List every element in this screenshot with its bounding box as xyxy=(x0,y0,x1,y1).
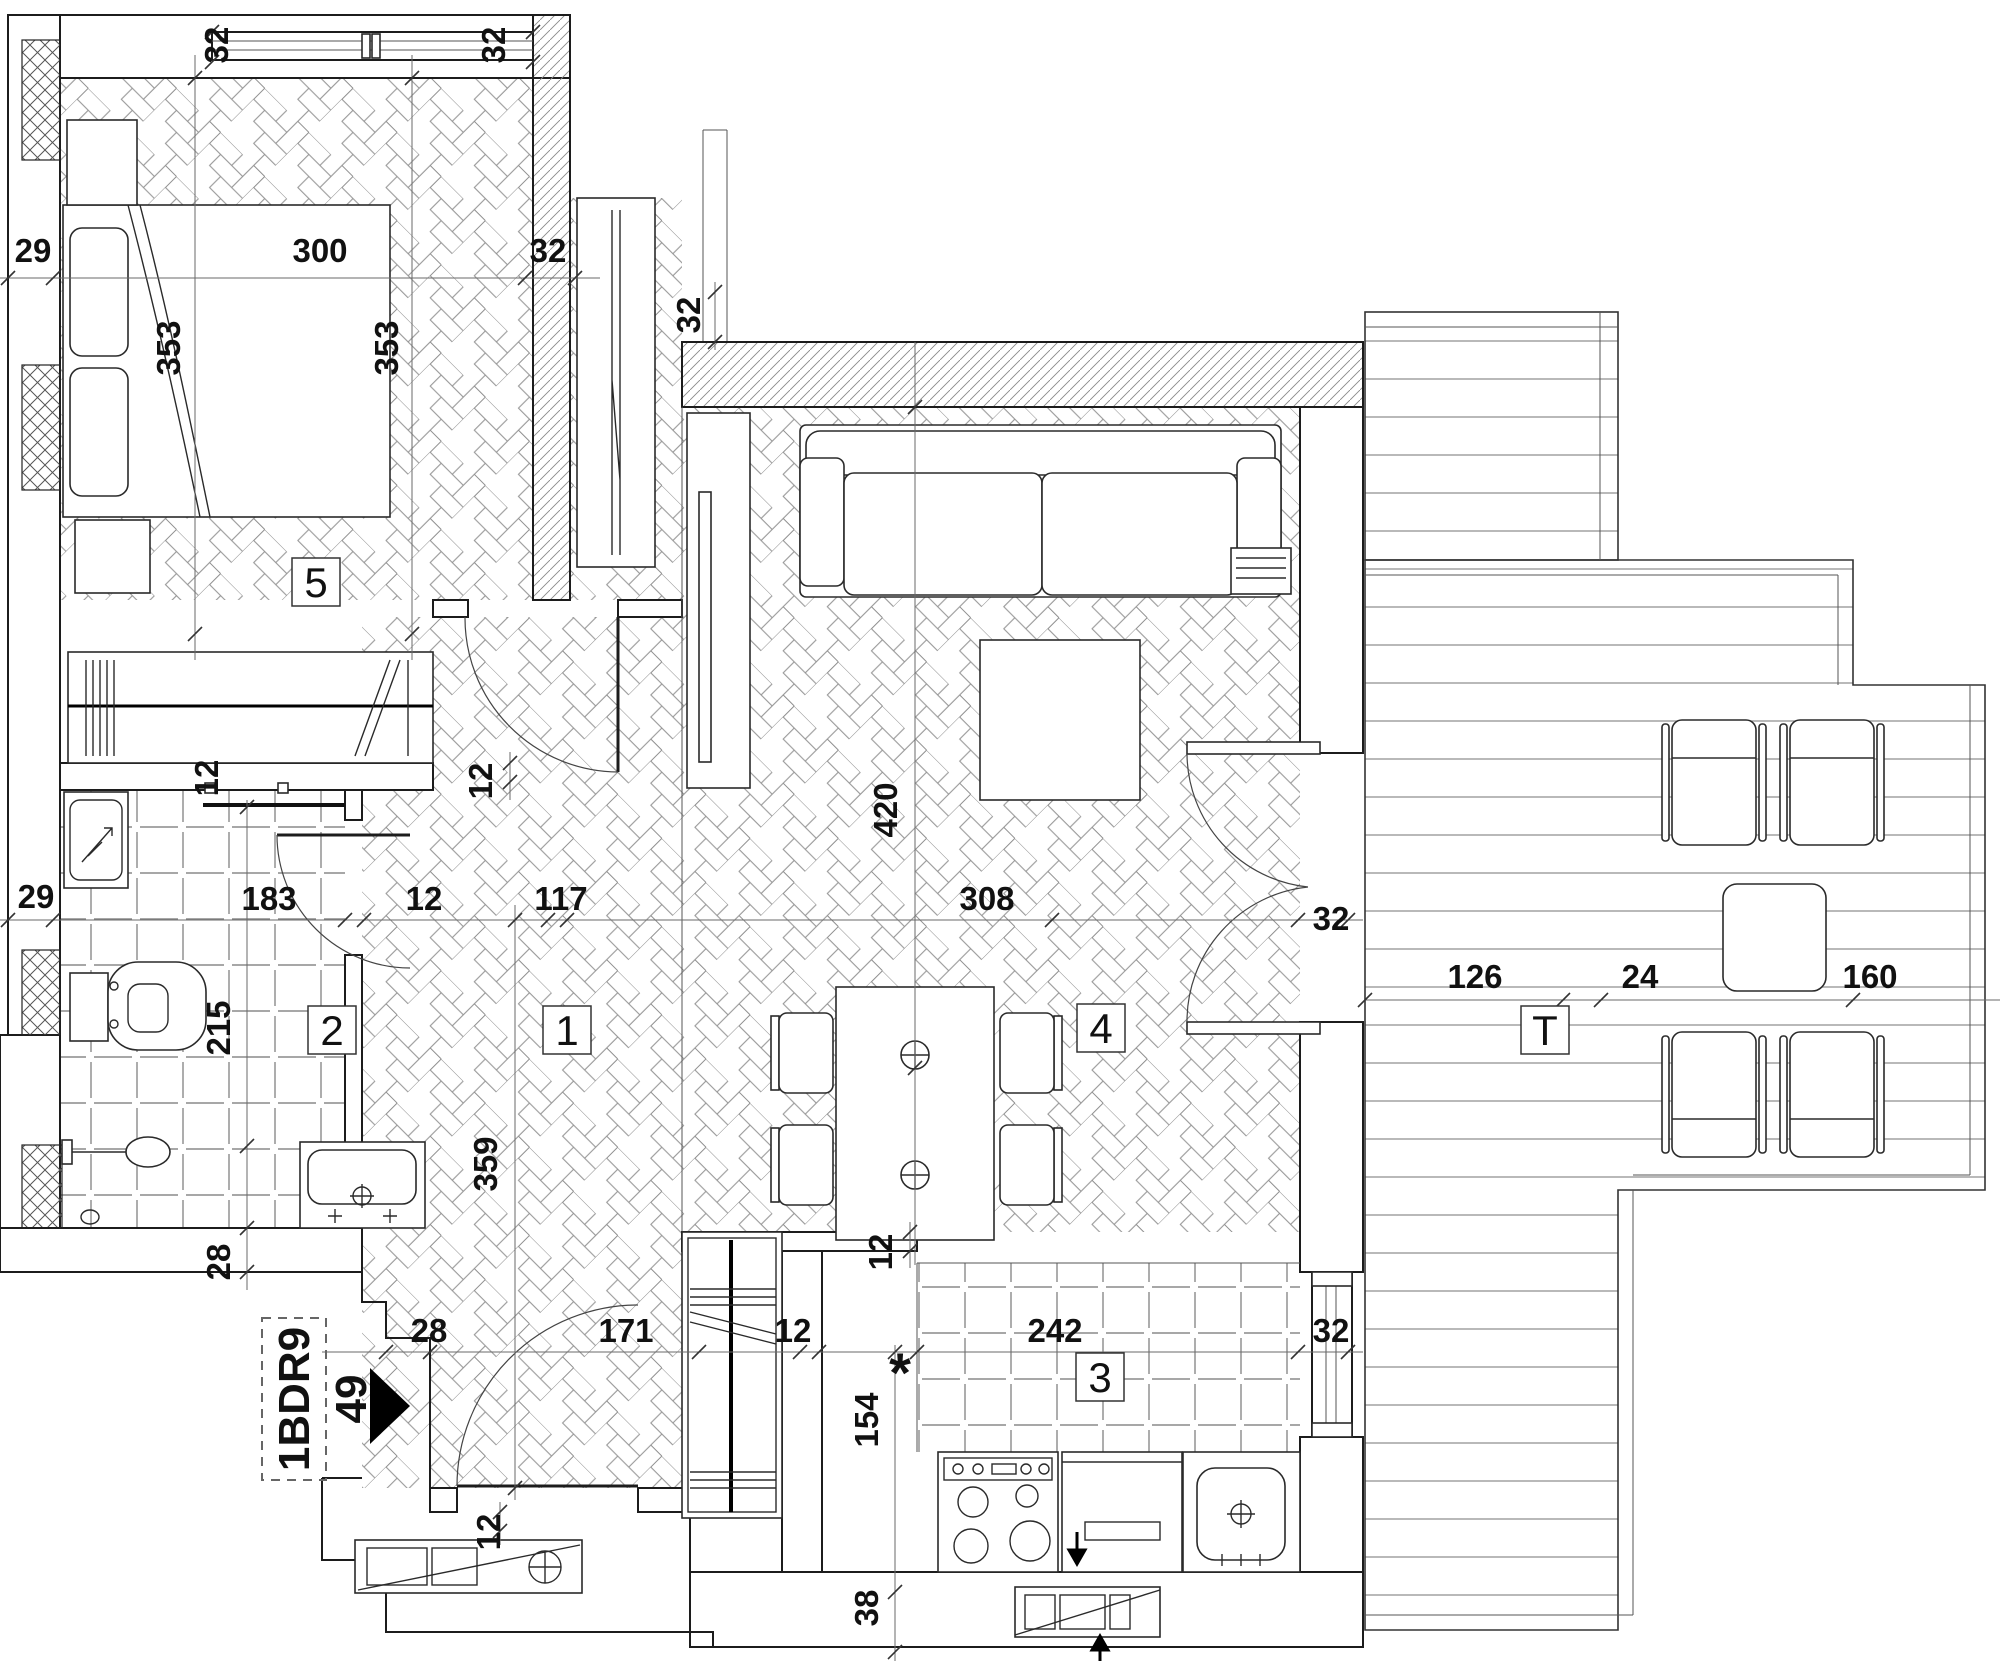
wall-east-lower xyxy=(1300,1437,1363,1572)
room-number: T xyxy=(1532,1007,1558,1054)
room-number: 5 xyxy=(304,559,327,606)
shower-head xyxy=(126,1137,170,1167)
dimension-label: 154 xyxy=(848,1392,885,1448)
window-mullion xyxy=(372,34,380,58)
sofa-backrest xyxy=(806,431,1275,475)
screen-bracket xyxy=(278,783,288,793)
dimension-label: 29 xyxy=(15,232,52,269)
tv-screen xyxy=(699,492,711,762)
window-mullion xyxy=(362,34,370,58)
nightstand xyxy=(75,520,150,593)
room-number: 3 xyxy=(1088,1354,1111,1401)
dimension-label: 242 xyxy=(1027,1312,1082,1349)
bed-pillow xyxy=(70,228,128,356)
toilet-tank xyxy=(70,973,108,1041)
dimension-label: 38 xyxy=(848,1590,885,1627)
balcony-door-leaf-top xyxy=(1187,742,1320,754)
dimension-label: 215 xyxy=(200,1000,237,1055)
dimension-label: 12 xyxy=(775,1312,812,1349)
shower-mount xyxy=(62,1140,72,1164)
chair-rail xyxy=(1662,724,1669,841)
dimension-label: 32 xyxy=(198,27,235,64)
room-label-hallway: 1 xyxy=(543,1006,591,1054)
terrace-chair xyxy=(1790,1032,1874,1157)
dimension-label: 12 xyxy=(470,1514,507,1551)
nightstand xyxy=(67,120,137,205)
terrace-chair xyxy=(1672,720,1756,845)
chair-back xyxy=(771,1016,779,1090)
dimension-label: 32 xyxy=(475,27,512,64)
kitchen-window-frame xyxy=(1312,1272,1352,1286)
room-label-living: 4 xyxy=(1077,1004,1125,1052)
wall-bedroom-divider xyxy=(533,15,570,600)
dimension-label: 32 xyxy=(670,297,707,334)
dimension-label: 359 xyxy=(467,1136,504,1191)
dimension-label: 171 xyxy=(598,1312,653,1349)
floor-plan-page: 3232293003235335332420121229183121173083… xyxy=(0,0,2000,1661)
dining-chair xyxy=(1000,1125,1054,1205)
terrace-chair xyxy=(1672,1032,1756,1157)
wall-bath-right-stub xyxy=(345,790,362,820)
room-number: 2 xyxy=(320,1007,343,1054)
hall-closet xyxy=(577,198,655,567)
chair-back xyxy=(771,1128,779,1202)
bed-pillow xyxy=(70,368,128,496)
wall-entry-stub xyxy=(430,1488,457,1512)
wall-east-upper xyxy=(1300,407,1363,753)
sofa-armrest xyxy=(800,458,844,586)
room-number: 1 xyxy=(555,1007,578,1054)
tv-unit xyxy=(687,413,750,788)
wall-stub xyxy=(433,600,468,617)
masonry-pier xyxy=(22,40,60,160)
dimension-label: 160 xyxy=(1842,958,1897,995)
chair-back xyxy=(1054,1128,1062,1202)
balcony-door-leaf-bottom xyxy=(1187,1022,1320,1034)
sofa-seat xyxy=(1042,473,1237,595)
dimension-label: 28 xyxy=(411,1312,448,1349)
wall-bath-bottom xyxy=(0,1228,362,1272)
chair-rail xyxy=(1780,724,1787,841)
dining-chair xyxy=(779,1013,833,1093)
chair-rail xyxy=(1877,724,1884,841)
sofa-seat xyxy=(844,473,1042,595)
dimension-label: 183 xyxy=(241,880,296,917)
dimension-label: 308 xyxy=(959,880,1014,917)
dimension-label: 12 xyxy=(188,760,225,797)
dimension-label: 12 xyxy=(862,1234,899,1271)
dimension-label: 32 xyxy=(1313,1312,1350,1349)
dimension-label: 12 xyxy=(406,880,443,917)
wall-hall-kitchen xyxy=(782,1251,822,1572)
kitchen-window-frame xyxy=(1312,1423,1352,1437)
dining-chair xyxy=(779,1125,833,1205)
chair-rail xyxy=(1877,1036,1884,1153)
coffee-table xyxy=(980,640,1140,800)
dimension-label: 32 xyxy=(530,232,567,269)
dimension-label: 353 xyxy=(368,320,405,375)
dining-chair xyxy=(1000,1013,1054,1093)
dimension-label: 32 xyxy=(1313,900,1350,937)
terrace-table xyxy=(1723,884,1826,991)
masonry-pier xyxy=(22,365,60,490)
room-label-bathroom: 2 xyxy=(308,1006,356,1054)
dimension-label: 300 xyxy=(292,232,347,269)
dimension-label: 28 xyxy=(200,1244,237,1281)
dimension-label: 353 xyxy=(150,320,187,375)
dimension-label: * xyxy=(889,1341,911,1404)
chair-rail xyxy=(1759,724,1766,841)
terrace-chair xyxy=(1790,720,1874,845)
room-label-terrace: T xyxy=(1521,1006,1569,1054)
dimension-label: 117 xyxy=(534,880,587,917)
dimension-label: 126 xyxy=(1447,958,1502,995)
chair-rail xyxy=(1662,1036,1669,1153)
room-number: 4 xyxy=(1089,1005,1112,1052)
dimension-label: 29 xyxy=(18,878,55,915)
dimension-label: 12 xyxy=(462,763,499,800)
washing-machine xyxy=(64,792,128,888)
terrace-upper-deck xyxy=(1365,312,1618,560)
dimension-label: 24 xyxy=(1622,958,1659,995)
masonry-pier xyxy=(22,950,60,1035)
wall-bath-top xyxy=(60,763,433,790)
chair-back xyxy=(1054,1016,1062,1090)
chair-rail xyxy=(1780,1036,1787,1153)
dimension-label: 420 xyxy=(867,782,904,837)
side-shelf xyxy=(1231,548,1291,594)
wall-east-mid xyxy=(1300,1022,1363,1272)
toilet-bowl xyxy=(108,962,206,1050)
unit-code-label: 1BDR9 xyxy=(270,1327,319,1471)
chair-rail xyxy=(1759,1036,1766,1153)
floor-plan-drawing: 3232293003235335332420121229183121173083… xyxy=(0,0,2000,1661)
room-label-bedroom: 5 xyxy=(292,558,340,606)
wall-living-top xyxy=(682,342,1363,407)
unit-area-label: 49 xyxy=(327,1375,376,1424)
wall-stub xyxy=(618,600,682,617)
room-label-kitchen: 3 xyxy=(1076,1353,1124,1401)
